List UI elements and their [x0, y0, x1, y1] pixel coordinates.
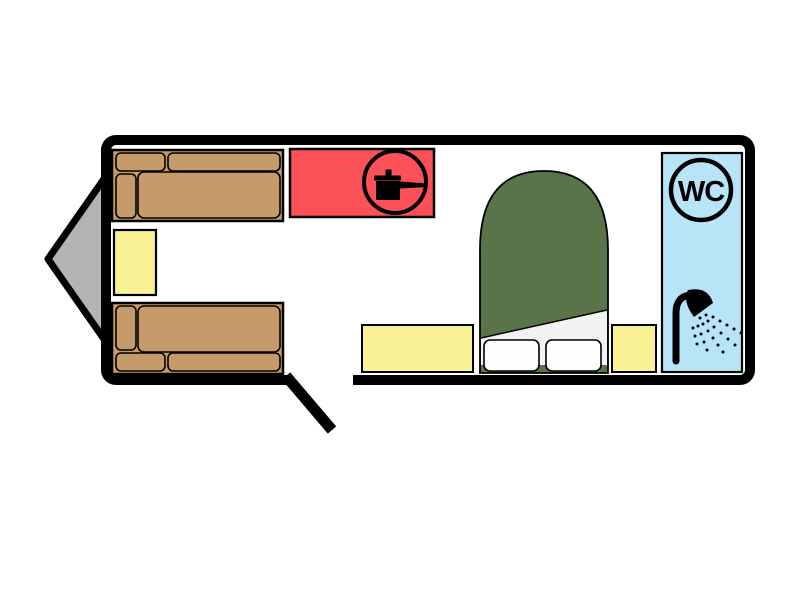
bathroom: WC: [662, 153, 743, 372]
caravan-floorplan: WC: [0, 0, 800, 600]
sofa-seat-cushion: [138, 306, 280, 352]
pot-body: [376, 181, 400, 200]
pot-knob: [386, 170, 392, 176]
sofa-armrest-cushion: [116, 306, 136, 350]
pot-lid: [374, 176, 401, 181]
kitchen-unit: [290, 149, 434, 217]
sofa-seat-cushion: [138, 172, 280, 218]
sofa-armrest-cushion: [116, 174, 136, 218]
bedside-unit-left: [362, 325, 473, 372]
side-table: [114, 230, 156, 295]
sofa-backrest-cushion: [116, 353, 165, 371]
sofa-top: [112, 150, 283, 221]
floorplan-page: WC: [0, 0, 800, 600]
wc-label: WC: [678, 176, 725, 208]
sofa-backrest-cushion: [116, 153, 165, 171]
pillow-left: [484, 340, 539, 371]
sofa-backrest-cushion: [168, 153, 280, 171]
bedside-unit-right: [612, 325, 656, 372]
pillow-right: [546, 340, 601, 371]
sofa-backrest-cushion: [168, 353, 280, 371]
sofa-bottom: [112, 303, 283, 374]
double-bed: [480, 171, 608, 373]
